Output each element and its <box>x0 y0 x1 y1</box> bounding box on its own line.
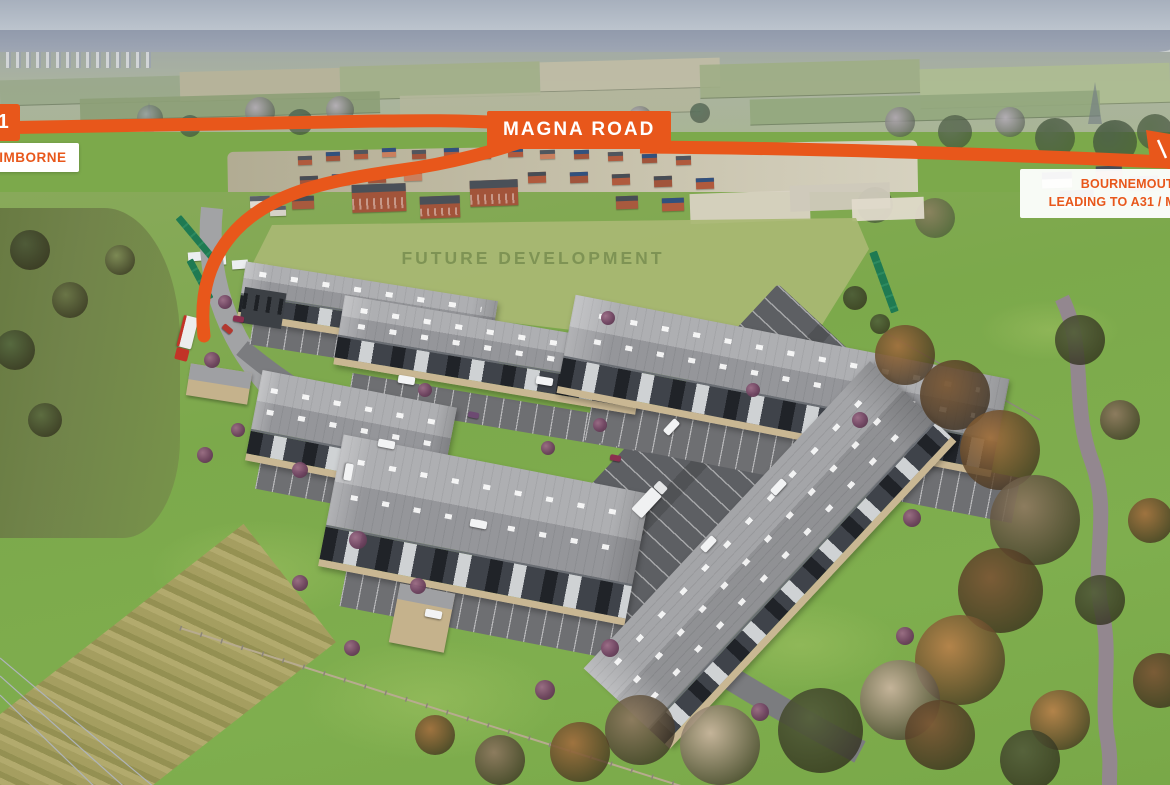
road-label-magna-road: MAGNA ROAD <box>487 111 671 149</box>
road-badge-a31: A31 <box>0 104 20 141</box>
route-segment-west <box>0 121 525 128</box>
destination-label-bournemouth: BOURNEMOUTH LEADING TO A31 / M3 <box>1020 169 1170 218</box>
route-segment-east <box>640 147 1170 163</box>
route-site-access <box>203 137 536 336</box>
destination-label-wimborne: WIMBORNE <box>0 143 79 172</box>
destination-line-1: BOURNEMOUTH <box>1030 176 1170 194</box>
aerial-site-plan: FUTURE DEVELOPMENT <box>0 0 1170 785</box>
destination-line-2: LEADING TO A31 / M3 <box>1030 194 1170 212</box>
